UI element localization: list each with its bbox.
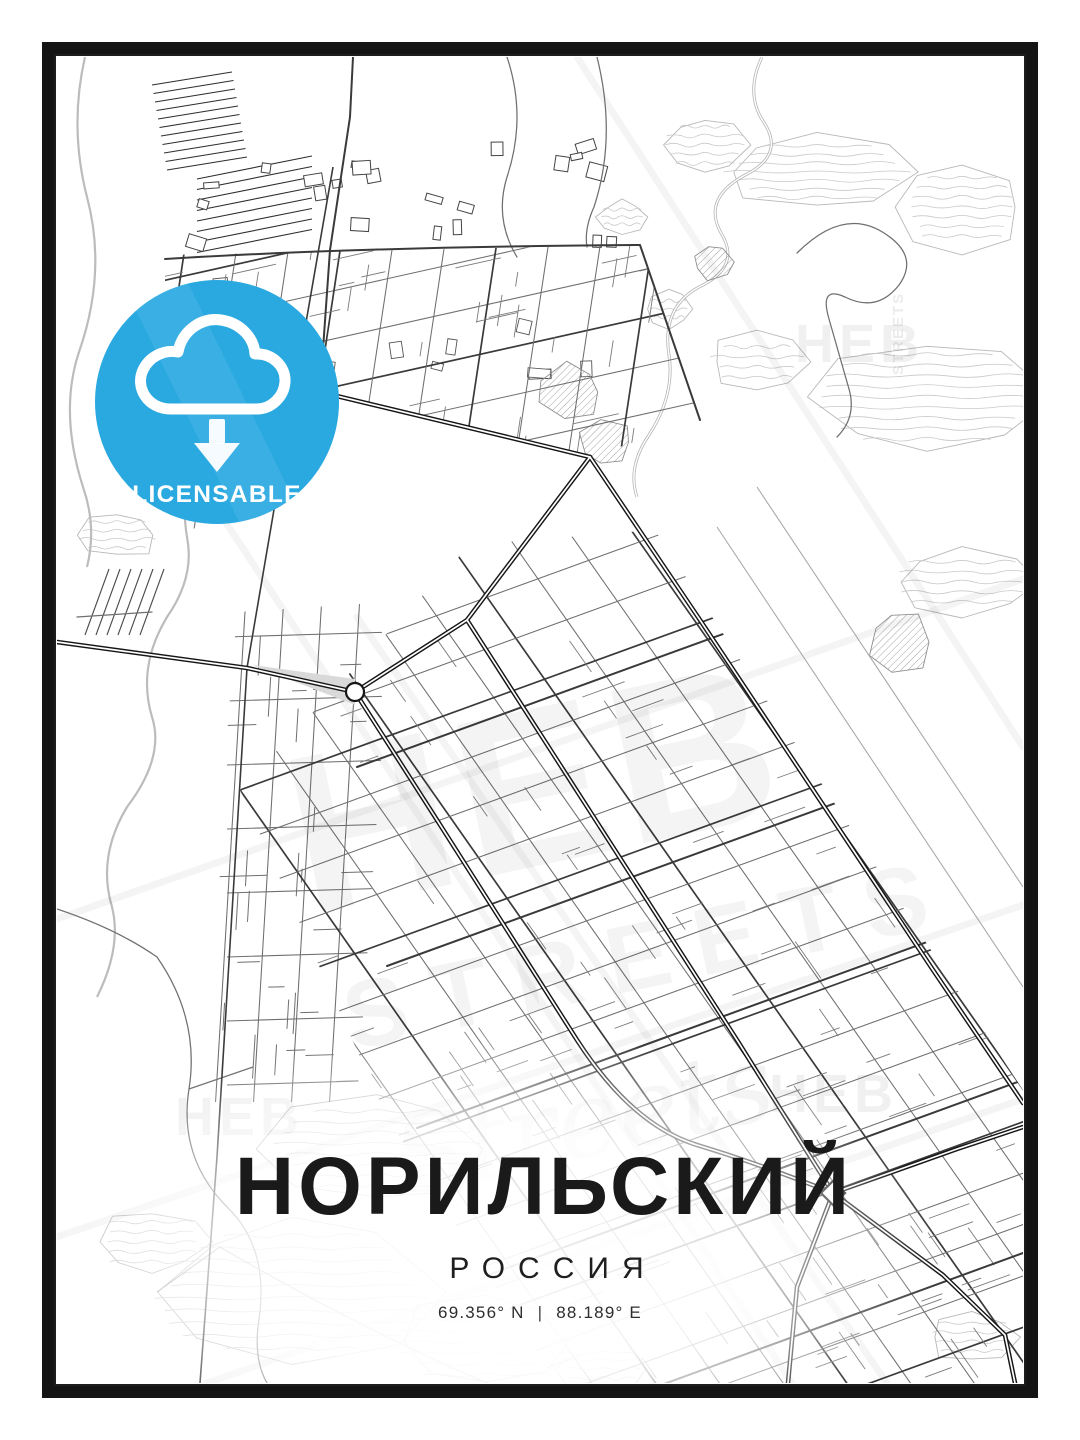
poster-coordinates: 69.356° N|88.189° E: [57, 1303, 1023, 1323]
watermark-vertical: STREETS: [890, 292, 907, 375]
download-arrow-icon: [209, 419, 225, 444]
poster-title: НОРИЛЬСКИЙ: [57, 1146, 1027, 1228]
map-poster: HEB STREETS Streets HEB STREETS HEB HEB …: [0, 0, 1080, 1440]
longitude-value: 88.189° E: [556, 1303, 642, 1322]
poster-subtitle: РОССИЯ: [57, 1252, 1036, 1286]
licensable-badge[interactable]: LICENSABLE: [95, 280, 339, 524]
latitude-value: 69.356° N: [438, 1303, 525, 1322]
badge-label: LICENSABLE: [132, 481, 302, 508]
cloud-download-icon: [141, 320, 286, 472]
coordinates-separator: |: [538, 1303, 544, 1322]
